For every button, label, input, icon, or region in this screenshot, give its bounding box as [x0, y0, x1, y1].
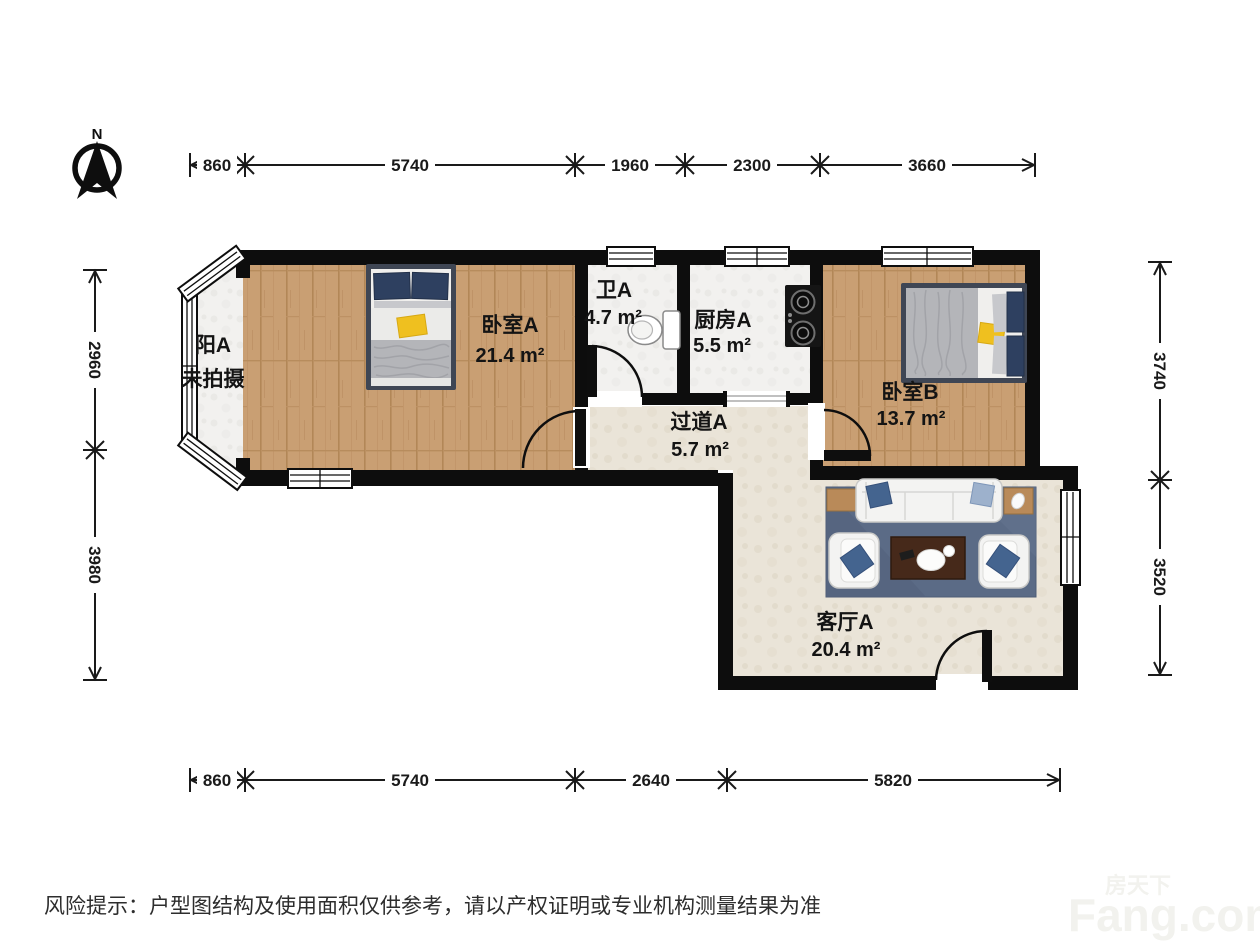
window-balcony-left: [182, 288, 197, 446]
dim-bottom-3: 5820: [874, 771, 912, 790]
coffee-table: [891, 537, 965, 579]
window-frame: [607, 247, 655, 266]
bed-bedroom-a: [366, 264, 456, 390]
floorplan-image: N: [0, 0, 1260, 945]
door-leaf: [587, 345, 597, 397]
compass-north-label: N: [92, 126, 103, 143]
side-table-right: [1004, 488, 1033, 514]
room-hallway-a-area: 5.7 m²: [671, 439, 729, 461]
window-kitchen-top: [725, 247, 789, 266]
room-bath-a-area: 4.7 m²: [584, 307, 642, 329]
dim-bottom-2: 2640: [632, 771, 670, 790]
sofa-pillow: [866, 482, 892, 508]
wall-segment-living-bottom: [718, 676, 1078, 690]
slide-jamb: [786, 391, 790, 407]
room-bedroom-a-label: 卧室A: [481, 313, 538, 337]
door-leaf: [824, 450, 871, 461]
room-bedroom-a-area: 21.4 m²: [476, 345, 545, 367]
window-frame: [182, 288, 197, 446]
stove-burner: [792, 322, 815, 345]
dim-top-2: 1960: [611, 156, 649, 175]
slide-jamb: [723, 391, 727, 407]
room-balcony-label: 阳A: [195, 334, 231, 357]
dim-bottom-0: 860: [203, 771, 231, 790]
stove-knob: [788, 319, 792, 323]
side-table-left: [827, 489, 856, 511]
dim-top-1: 5740: [391, 156, 429, 175]
sofa: [856, 479, 1002, 522]
cup: [944, 546, 955, 557]
wall-segment-bedroom-b-right: [1025, 250, 1040, 472]
room-balcony-note: 未拍摄: [182, 367, 246, 391]
opening-bedroom-b: [808, 403, 825, 460]
room-living-a-label: 客厅A: [816, 610, 873, 634]
pillow-strip: [374, 301, 451, 309]
wall-segment-bedroom-b-bottom: [810, 466, 1078, 480]
dim-left-1: 3980: [85, 546, 104, 584]
dim-right-1: 3520: [1150, 558, 1169, 596]
dim-right-0: 3740: [1150, 352, 1169, 390]
room-kitchen-a-area: 5.5 m²: [693, 335, 751, 357]
dim-top-4: 3660: [908, 156, 946, 175]
dim-top-0: 860: [203, 156, 231, 175]
dim-top-3: 2300: [733, 156, 771, 175]
room-hallway-a-label: 过道A: [670, 410, 727, 434]
room-bedroom-b-area: 13.7 m²: [877, 408, 946, 430]
window-living-right: [1061, 490, 1080, 585]
dim-bottom-1: 5740: [391, 771, 429, 790]
pillow: [1007, 336, 1024, 376]
dim-left-0: 2960: [85, 341, 104, 379]
window-bedroom-a-bottom: [288, 469, 352, 488]
room-kitchen-a-label: 厨房A: [694, 308, 751, 332]
pillow: [1007, 292, 1024, 332]
room-living-a-area: 20.4 m²: [812, 639, 881, 661]
opening-entry: [936, 674, 988, 692]
sofa-pillow: [970, 482, 994, 506]
brand-watermark-en: Fang.com: [1068, 889, 1260, 941]
pillow: [374, 272, 411, 299]
room-bath-a-label: 卫A: [596, 279, 632, 302]
door-leaf: [982, 630, 992, 682]
wall-segment-living-left: [718, 473, 733, 690]
stove-knob: [788, 313, 792, 317]
stove-icon: [785, 285, 821, 347]
window-bedroom-b-top: [882, 247, 973, 266]
pillow: [412, 272, 449, 299]
armchair-right: [979, 535, 1029, 588]
living-room-furniture: [826, 479, 1036, 597]
bed-sheet-edge: [371, 378, 451, 386]
stove-burner: [792, 291, 815, 314]
window-bath-top: [607, 247, 655, 266]
pillow-gray: [992, 336, 1008, 375]
opening-kitchen-a: [723, 391, 790, 407]
accent-pillow: [397, 314, 428, 338]
room-bedroom-b-label: 卧室B: [881, 380, 938, 404]
plate: [917, 550, 945, 571]
toilet-tank: [663, 311, 680, 349]
bed-bedroom-b: [901, 283, 1027, 383]
risk-disclaimer: 风险提示：户型图结构及使用面积仅供参考，请以产权证明或专业机构测量结果为准: [44, 895, 821, 918]
door-leaf: [575, 409, 586, 466]
pillow-gray: [992, 294, 1008, 333]
armchair-left: [829, 533, 879, 588]
